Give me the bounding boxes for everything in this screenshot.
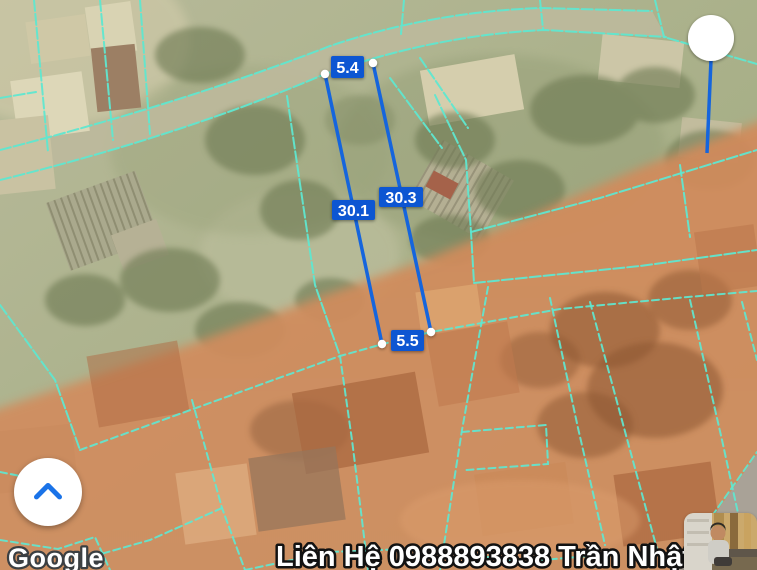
maps-app-screen: 5.4 30.1 30.3 5.5 Google Liên Hệ 098889: [0, 0, 757, 570]
measure-label-bottom: 5.5: [391, 330, 424, 351]
measure-label-right-text: 30.3: [385, 190, 416, 207]
measure-label-top: 5.4: [331, 56, 364, 78]
google-logo: Google: [8, 543, 104, 570]
collapse-sheet-button[interactable]: [14, 458, 82, 526]
measure-label-left: 30.1: [332, 200, 375, 220]
measure-label-right: 30.3: [379, 187, 423, 207]
chevron-up-icon: [20, 458, 76, 526]
map-canvas[interactable]: 5.4 30.1 30.3 5.5 Google Liên Hệ 098889: [0, 0, 757, 570]
contact-overlay-text: Liên Hệ 0988893838 Trần Nhật: [276, 541, 692, 570]
measure-label-top-text: 5.4: [336, 60, 358, 77]
white-circle-marker[interactable]: [688, 15, 734, 61]
avatar: [684, 513, 757, 570]
measure-label-bottom-text: 5.5: [396, 333, 418, 350]
profile-photo: [684, 513, 757, 570]
measure-label-left-text: 30.1: [338, 203, 369, 220]
